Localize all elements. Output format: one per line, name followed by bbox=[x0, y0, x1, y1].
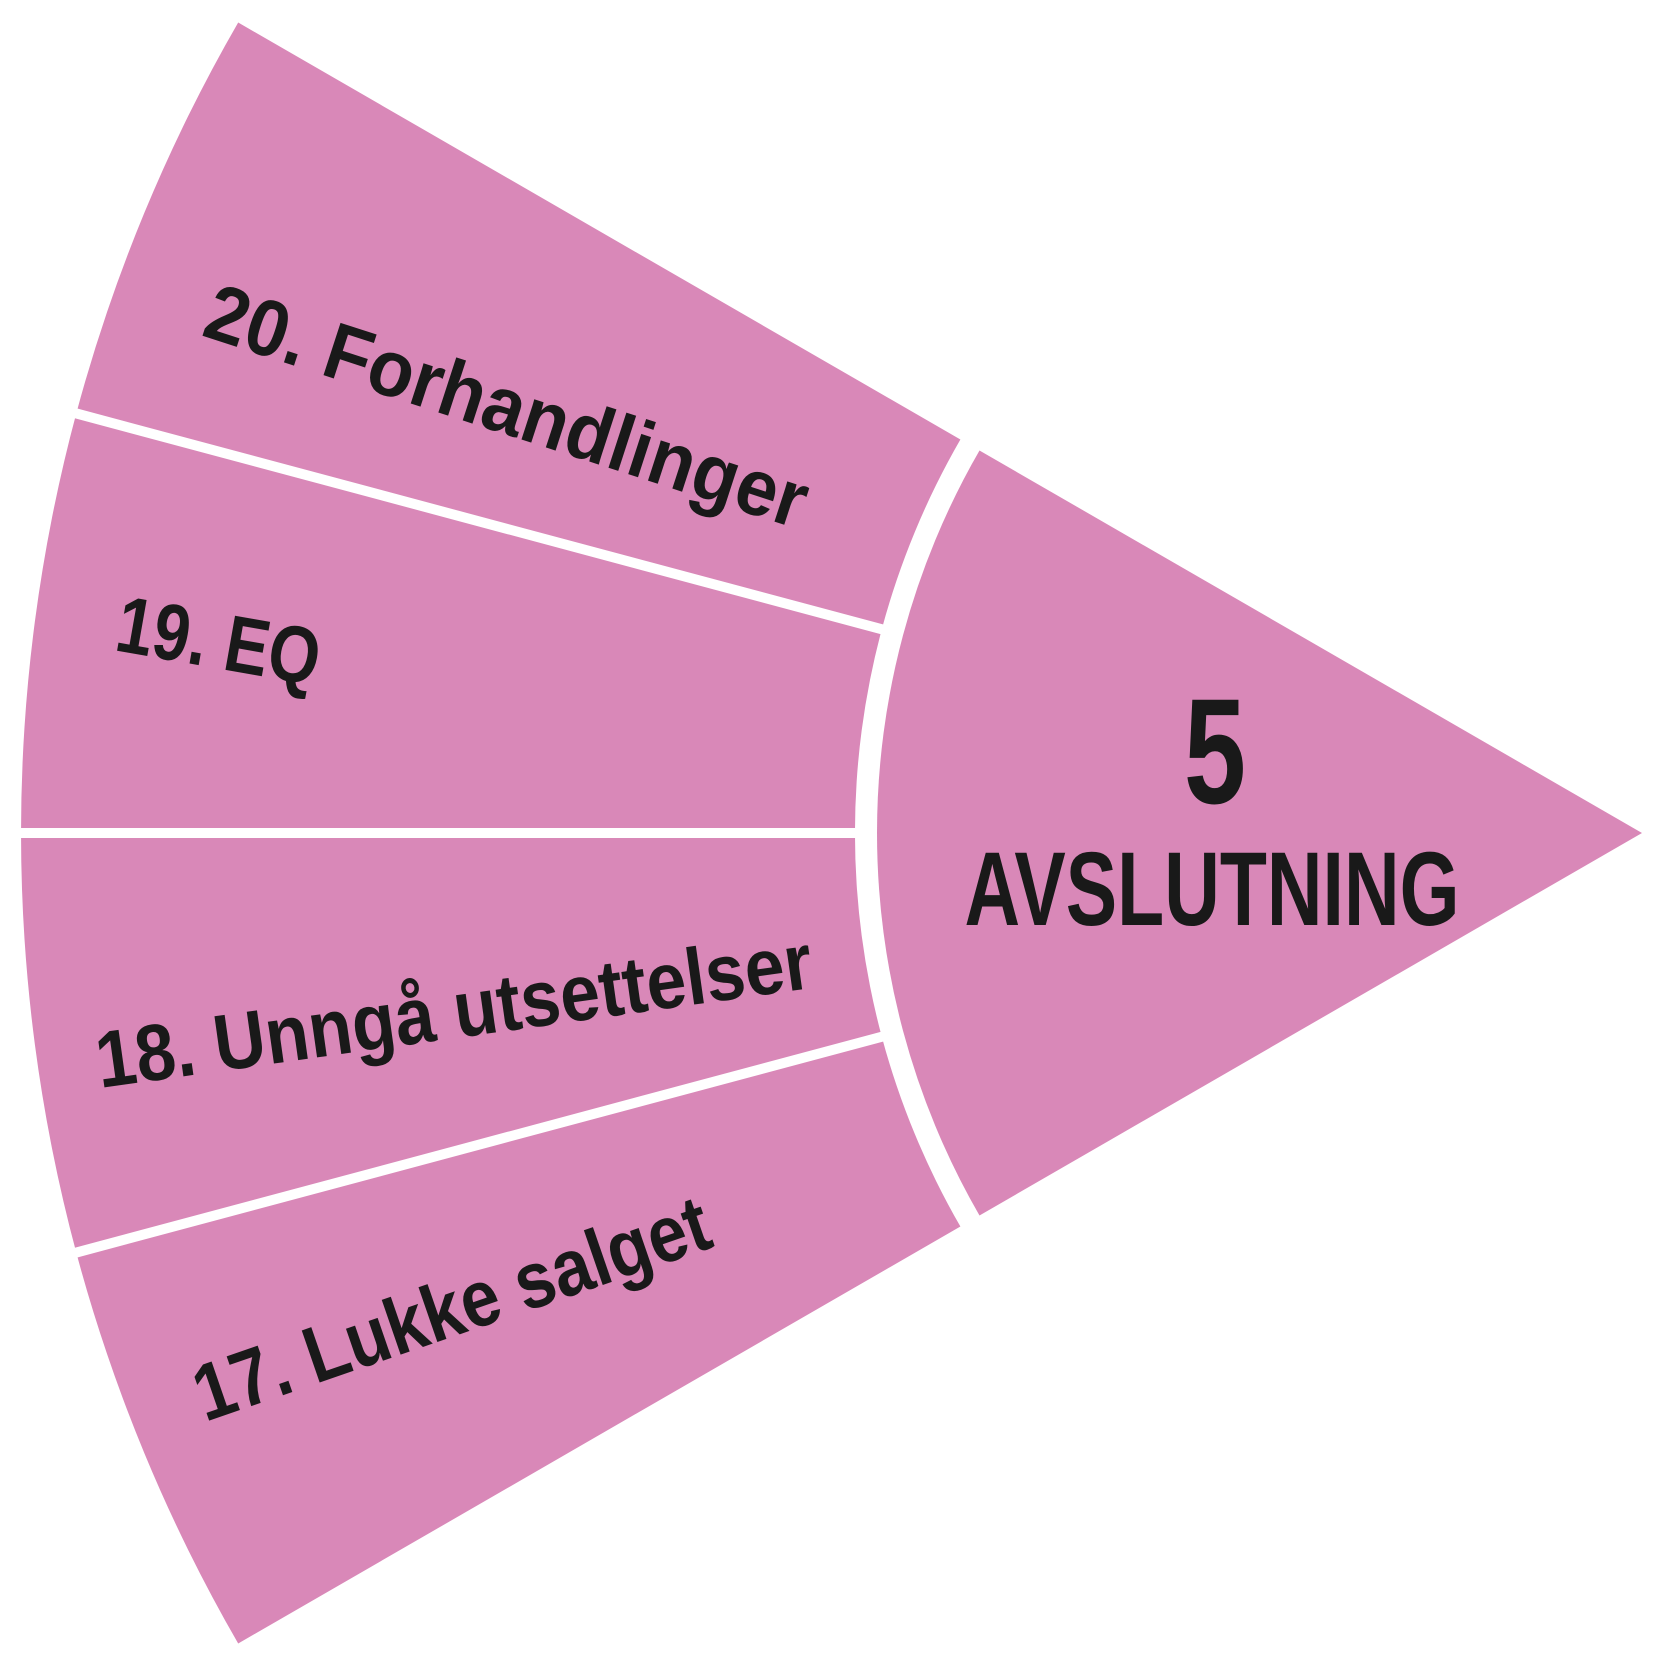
sales-wheel-phase-diagram: 20. Forhandlinger 19. EQ 18. Unngå utset… bbox=[0, 0, 1671, 1669]
phase-title: AVSLUTNING bbox=[965, 831, 1460, 948]
fan-diagram-canvas: 20. Forhandlinger 19. EQ 18. Unngå utset… bbox=[0, 0, 1671, 1669]
phase-number: 5 bbox=[1184, 667, 1246, 835]
